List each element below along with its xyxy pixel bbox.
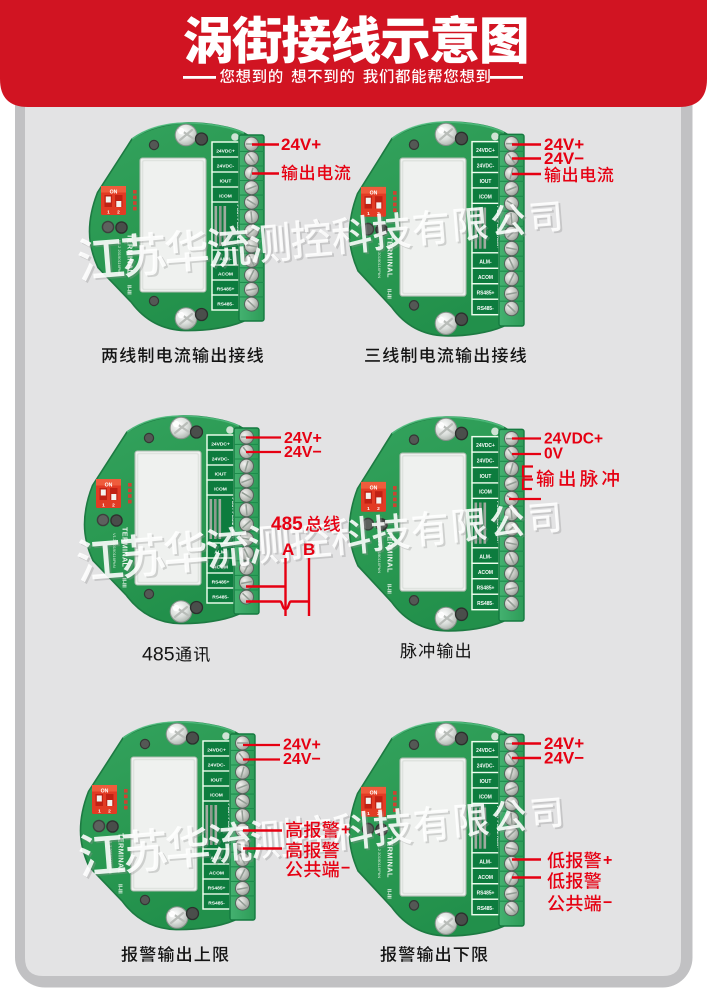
svg-text:24V−: 24V− [283, 751, 321, 768]
svg-text:−: − [603, 895, 612, 912]
svg-text:+: + [341, 822, 350, 839]
svg-text:24V−: 24V− [284, 444, 322, 461]
svg-text:B: B [303, 540, 315, 559]
svg-text:24V+: 24V+ [281, 135, 321, 154]
svg-text:0V: 0V [544, 446, 564, 463]
svg-text:−: − [341, 860, 350, 877]
svg-text:A: A [282, 540, 294, 559]
svg-text:24V−: 24V− [544, 149, 584, 168]
svg-text:485: 485 [271, 514, 303, 535]
svg-text:24V−: 24V− [544, 749, 584, 768]
svg-text:+: + [603, 852, 612, 869]
svg-text:485: 485 [142, 644, 175, 666]
